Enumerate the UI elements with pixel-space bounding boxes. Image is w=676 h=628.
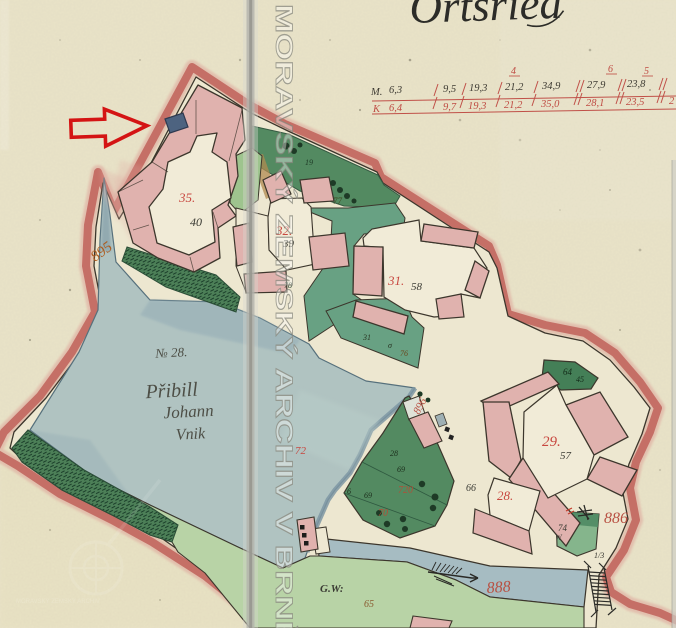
svg-text:19: 19 [305, 158, 313, 167]
svg-text:31.: 31. [387, 273, 404, 288]
svg-text:23,5: 23,5 [626, 97, 644, 108]
svg-text:34,9: 34,9 [541, 81, 561, 92]
svg-text:G.W:: G.W: [320, 583, 344, 595]
svg-text:720: 720 [398, 485, 413, 496]
svg-text:888: 888 [486, 578, 511, 597]
svg-text:6: 6 [608, 64, 613, 75]
svg-text:M.: M. [370, 87, 382, 98]
svg-text:6,4: 6,4 [389, 103, 403, 114]
svg-text:K: K [372, 104, 381, 115]
svg-text:35.: 35. [178, 190, 195, 205]
svg-text:28,1: 28,1 [586, 98, 604, 109]
svg-text:9,5: 9,5 [443, 84, 456, 95]
svg-text:69: 69 [397, 465, 405, 474]
svg-text:77: 77 [333, 196, 343, 206]
svg-text:35,0: 35,0 [540, 99, 560, 110]
svg-text:70: 70 [378, 508, 388, 519]
svg-text:21,2: 21,2 [505, 82, 524, 93]
svg-text:Ortsried: Ortsried [409, 0, 564, 33]
svg-text:19,3: 19,3 [469, 83, 487, 94]
svg-text:MORAVSKÝ ZEMSKÝ ARCHIV: MORAVSKÝ ZEMSKÝ ARCHIV [16, 598, 100, 605]
svg-text:1/3: 1/3 [594, 551, 604, 560]
svg-text:4: 4 [511, 66, 516, 77]
svg-text:28.: 28. [497, 488, 513, 503]
svg-text:69: 69 [364, 491, 372, 500]
svg-text:Johann: Johann [163, 401, 214, 423]
svg-text:№ 28.: № 28. [154, 344, 188, 361]
svg-text:76: 76 [400, 349, 408, 358]
svg-text:74: 74 [558, 523, 568, 533]
svg-text:886: 886 [604, 510, 628, 527]
svg-text:5: 5 [644, 66, 649, 77]
svg-text:40: 40 [190, 215, 202, 229]
svg-text:45: 45 [576, 375, 584, 384]
svg-text:19,3: 19,3 [468, 101, 486, 112]
svg-text:27,9: 27,9 [587, 80, 606, 91]
svg-text:Vnik: Vnik [175, 425, 206, 444]
svg-text:MORAVSKÝ ZEMSKÝ ARCHIV V BRNĚ: MORAVSKÝ ZEMSKÝ ARCHIV V BRNĚ [270, 4, 298, 628]
svg-text:6: 6 [347, 487, 351, 496]
svg-text:21,2: 21,2 [504, 100, 523, 111]
svg-text:9,7: 9,7 [443, 102, 457, 113]
svg-text:57: 57 [560, 450, 572, 462]
svg-text:6,3: 6,3 [389, 85, 402, 96]
svg-text:31: 31 [362, 333, 371, 342]
svg-text:28: 28 [390, 449, 398, 458]
svg-text:66: 66 [466, 483, 476, 494]
svg-text:2: 2 [669, 96, 675, 107]
svg-text:29.: 29. [542, 434, 561, 450]
svg-text:Přibill: Přibill [144, 379, 199, 404]
svg-text:65: 65 [364, 599, 374, 610]
svg-text:64: 64 [563, 367, 573, 377]
svg-text:23,8: 23,8 [627, 79, 646, 90]
svg-text:58: 58 [411, 281, 423, 293]
